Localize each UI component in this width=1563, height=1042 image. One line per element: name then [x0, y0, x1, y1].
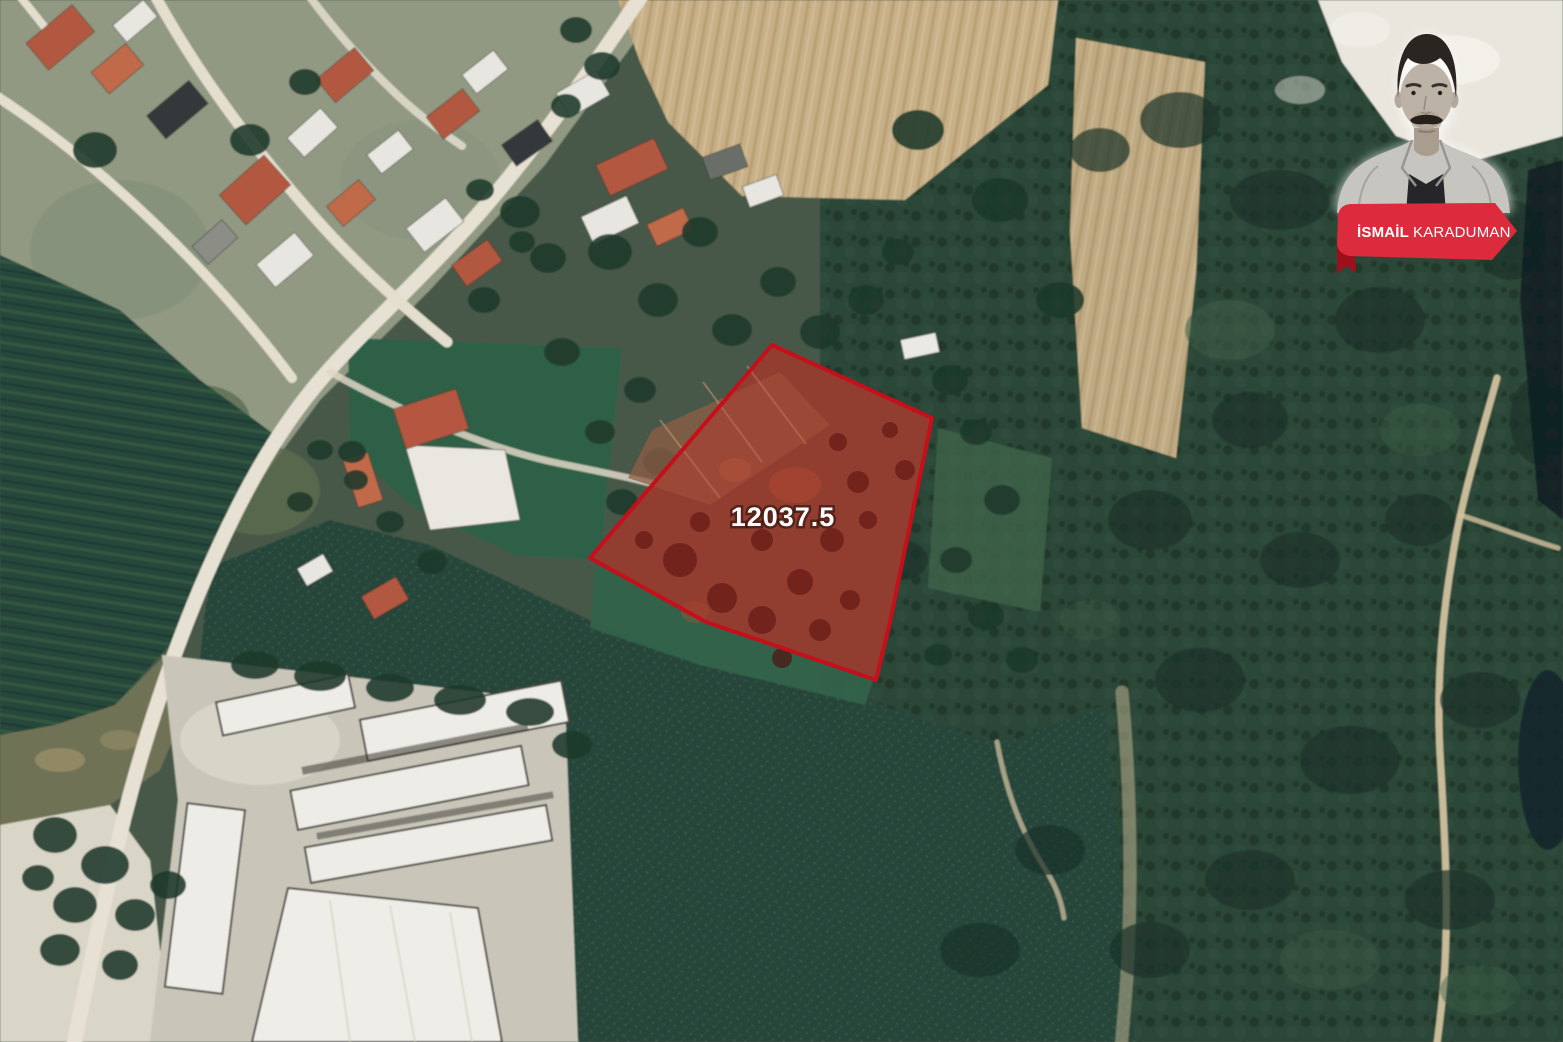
- parcel-area-label: 12037.5: [731, 502, 836, 532]
- article-hero-image: 12037.5 İSMAİL KARADUMAN: [0, 0, 1563, 1042]
- byline-last-name: KARADUMAN: [1413, 224, 1511, 241]
- satellite-map: 12037.5 İSMAİL KARADUMAN: [0, 0, 1563, 1042]
- byline-first-name: İSMAİL: [1357, 224, 1409, 241]
